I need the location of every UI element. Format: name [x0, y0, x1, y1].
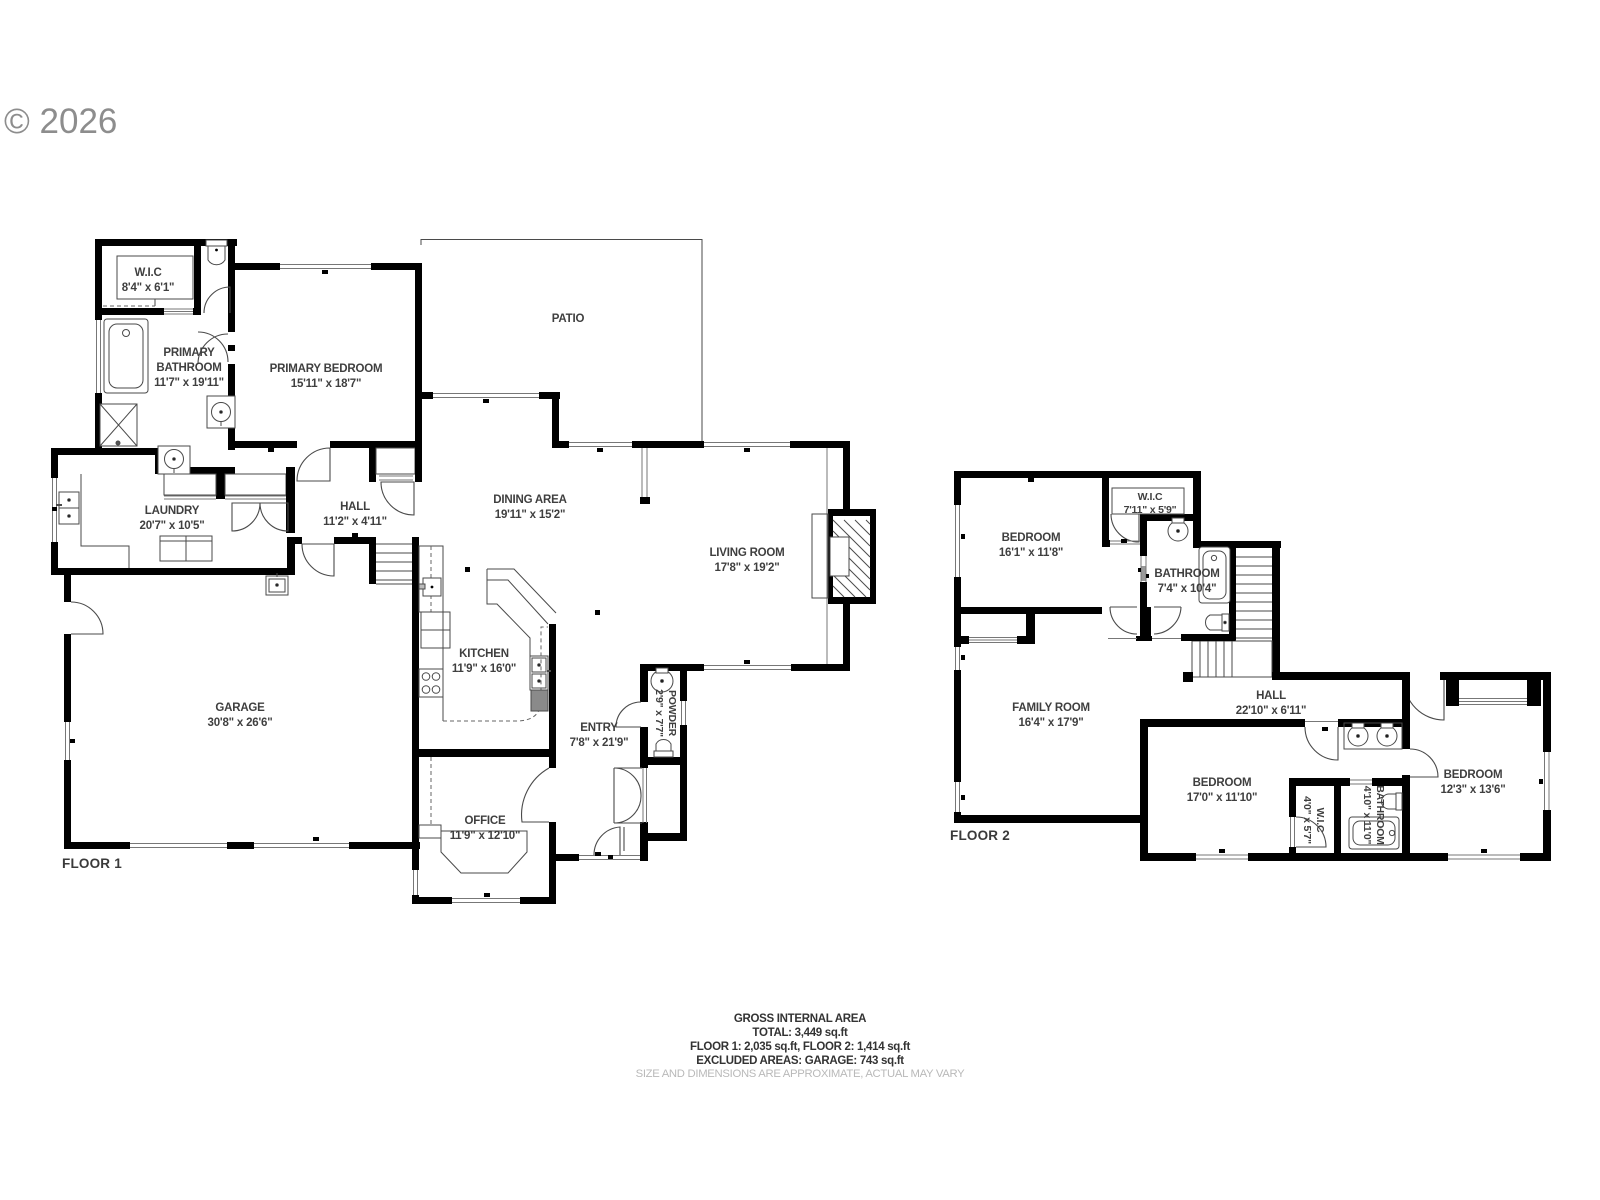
svg-text:PRIMARY: PRIMARY [163, 347, 215, 359]
svg-text:11'2" x 4'11": 11'2" x 4'11" [323, 516, 387, 528]
svg-text:BATHROOM: BATHROOM [1154, 568, 1219, 580]
svg-text:PATIO: PATIO [552, 313, 585, 325]
svg-text:7'8" x 21'9": 7'8" x 21'9" [570, 737, 629, 749]
svg-text:BATHROOM: BATHROOM [1374, 785, 1386, 845]
svg-text:LIVING ROOM: LIVING ROOM [709, 547, 784, 559]
svg-text:HALL: HALL [1256, 690, 1286, 702]
svg-text:PRIMARY BEDROOM: PRIMARY BEDROOM [270, 363, 383, 375]
svg-text:© 2026: © 2026 [4, 102, 117, 141]
svg-text:16'1" x 11'8": 16'1" x 11'8" [999, 547, 1063, 559]
svg-text:GARAGE: GARAGE [215, 702, 265, 714]
svg-text:15'11" x 18'7": 15'11" x 18'7" [291, 378, 362, 390]
svg-text:11'7" x 19'11": 11'7" x 19'11" [154, 377, 224, 389]
svg-text:16'4" x 17'9": 16'4" x 17'9" [1019, 717, 1084, 729]
svg-text:17'8" x 19'2": 17'8" x 19'2" [715, 562, 780, 574]
svg-text:BEDROOM: BEDROOM [1002, 532, 1061, 544]
svg-text:LAUNDRY: LAUNDRY [145, 505, 200, 517]
svg-text:DINING AREA: DINING AREA [493, 494, 566, 506]
svg-text:BEDROOM: BEDROOM [1193, 777, 1252, 789]
svg-text:W.I.C: W.I.C [134, 267, 161, 279]
svg-text:2'9" x 7'7": 2'9" x 7'7" [653, 689, 665, 737]
svg-text:FLOOR 1: 2,035 sq.ft, FLOOR 2:: FLOOR 1: 2,035 sq.ft, FLOOR 2: 1,414 sq.… [690, 1041, 910, 1053]
svg-text:BATHROOM: BATHROOM [156, 362, 221, 374]
svg-text:20'7" x 10'5": 20'7" x 10'5" [140, 520, 205, 532]
svg-text:8'4" x 6'1": 8'4" x 6'1" [122, 282, 175, 294]
svg-text:ENTRY: ENTRY [580, 722, 618, 734]
svg-text:FLOOR 1: FLOOR 1 [62, 856, 122, 871]
svg-text:BEDROOM: BEDROOM [1444, 769, 1503, 781]
svg-text:12'3" x 13'6": 12'3" x 13'6" [1441, 784, 1506, 796]
svg-text:4'10" x 11'0": 4'10" x 11'0" [1361, 786, 1373, 845]
svg-text:GROSS INTERNAL AREA: GROSS INTERNAL AREA [734, 1013, 866, 1025]
svg-text:EXCLUDED AREAS: GARAGE: 743 sq: EXCLUDED AREAS: GARAGE: 743 sq.ft [696, 1055, 904, 1067]
svg-text:HALL: HALL [340, 501, 370, 513]
svg-text:4'0" x 5'7": 4'0" x 5'7" [1301, 796, 1313, 844]
svg-text:SIZE AND DIMENSIONS ARE APPROX: SIZE AND DIMENSIONS ARE APPROXIMATE, ACT… [636, 1068, 966, 1080]
svg-text:17'0" x 11'10": 17'0" x 11'10" [1187, 792, 1258, 804]
svg-text:11'9" x 16'0": 11'9" x 16'0" [452, 663, 516, 675]
svg-text:TOTAL: 3,449 sq.ft: TOTAL: 3,449 sq.ft [752, 1027, 848, 1039]
svg-text:OFFICE: OFFICE [465, 815, 506, 827]
svg-text:POWDER: POWDER [666, 690, 678, 737]
svg-text:19'11" x 15'2": 19'11" x 15'2" [495, 509, 566, 521]
svg-text:W.I.C: W.I.C [1138, 491, 1163, 503]
svg-text:7'11" x 5'9": 7'11" x 5'9" [1124, 504, 1177, 516]
svg-text:KITCHEN: KITCHEN [459, 648, 509, 660]
svg-text:30'8" x 26'6": 30'8" x 26'6" [208, 717, 273, 729]
svg-text:7'4" x 10'4": 7'4" x 10'4" [1158, 583, 1217, 595]
svg-text:W.I.C: W.I.C [1314, 808, 1326, 833]
svg-text:FLOOR 2: FLOOR 2 [950, 828, 1010, 843]
svg-text:FAMILY ROOM: FAMILY ROOM [1012, 702, 1090, 714]
svg-text:22'10" x 6'11": 22'10" x 6'11" [1236, 705, 1307, 717]
svg-text:11'9" x 12'10": 11'9" x 12'10" [450, 830, 521, 842]
